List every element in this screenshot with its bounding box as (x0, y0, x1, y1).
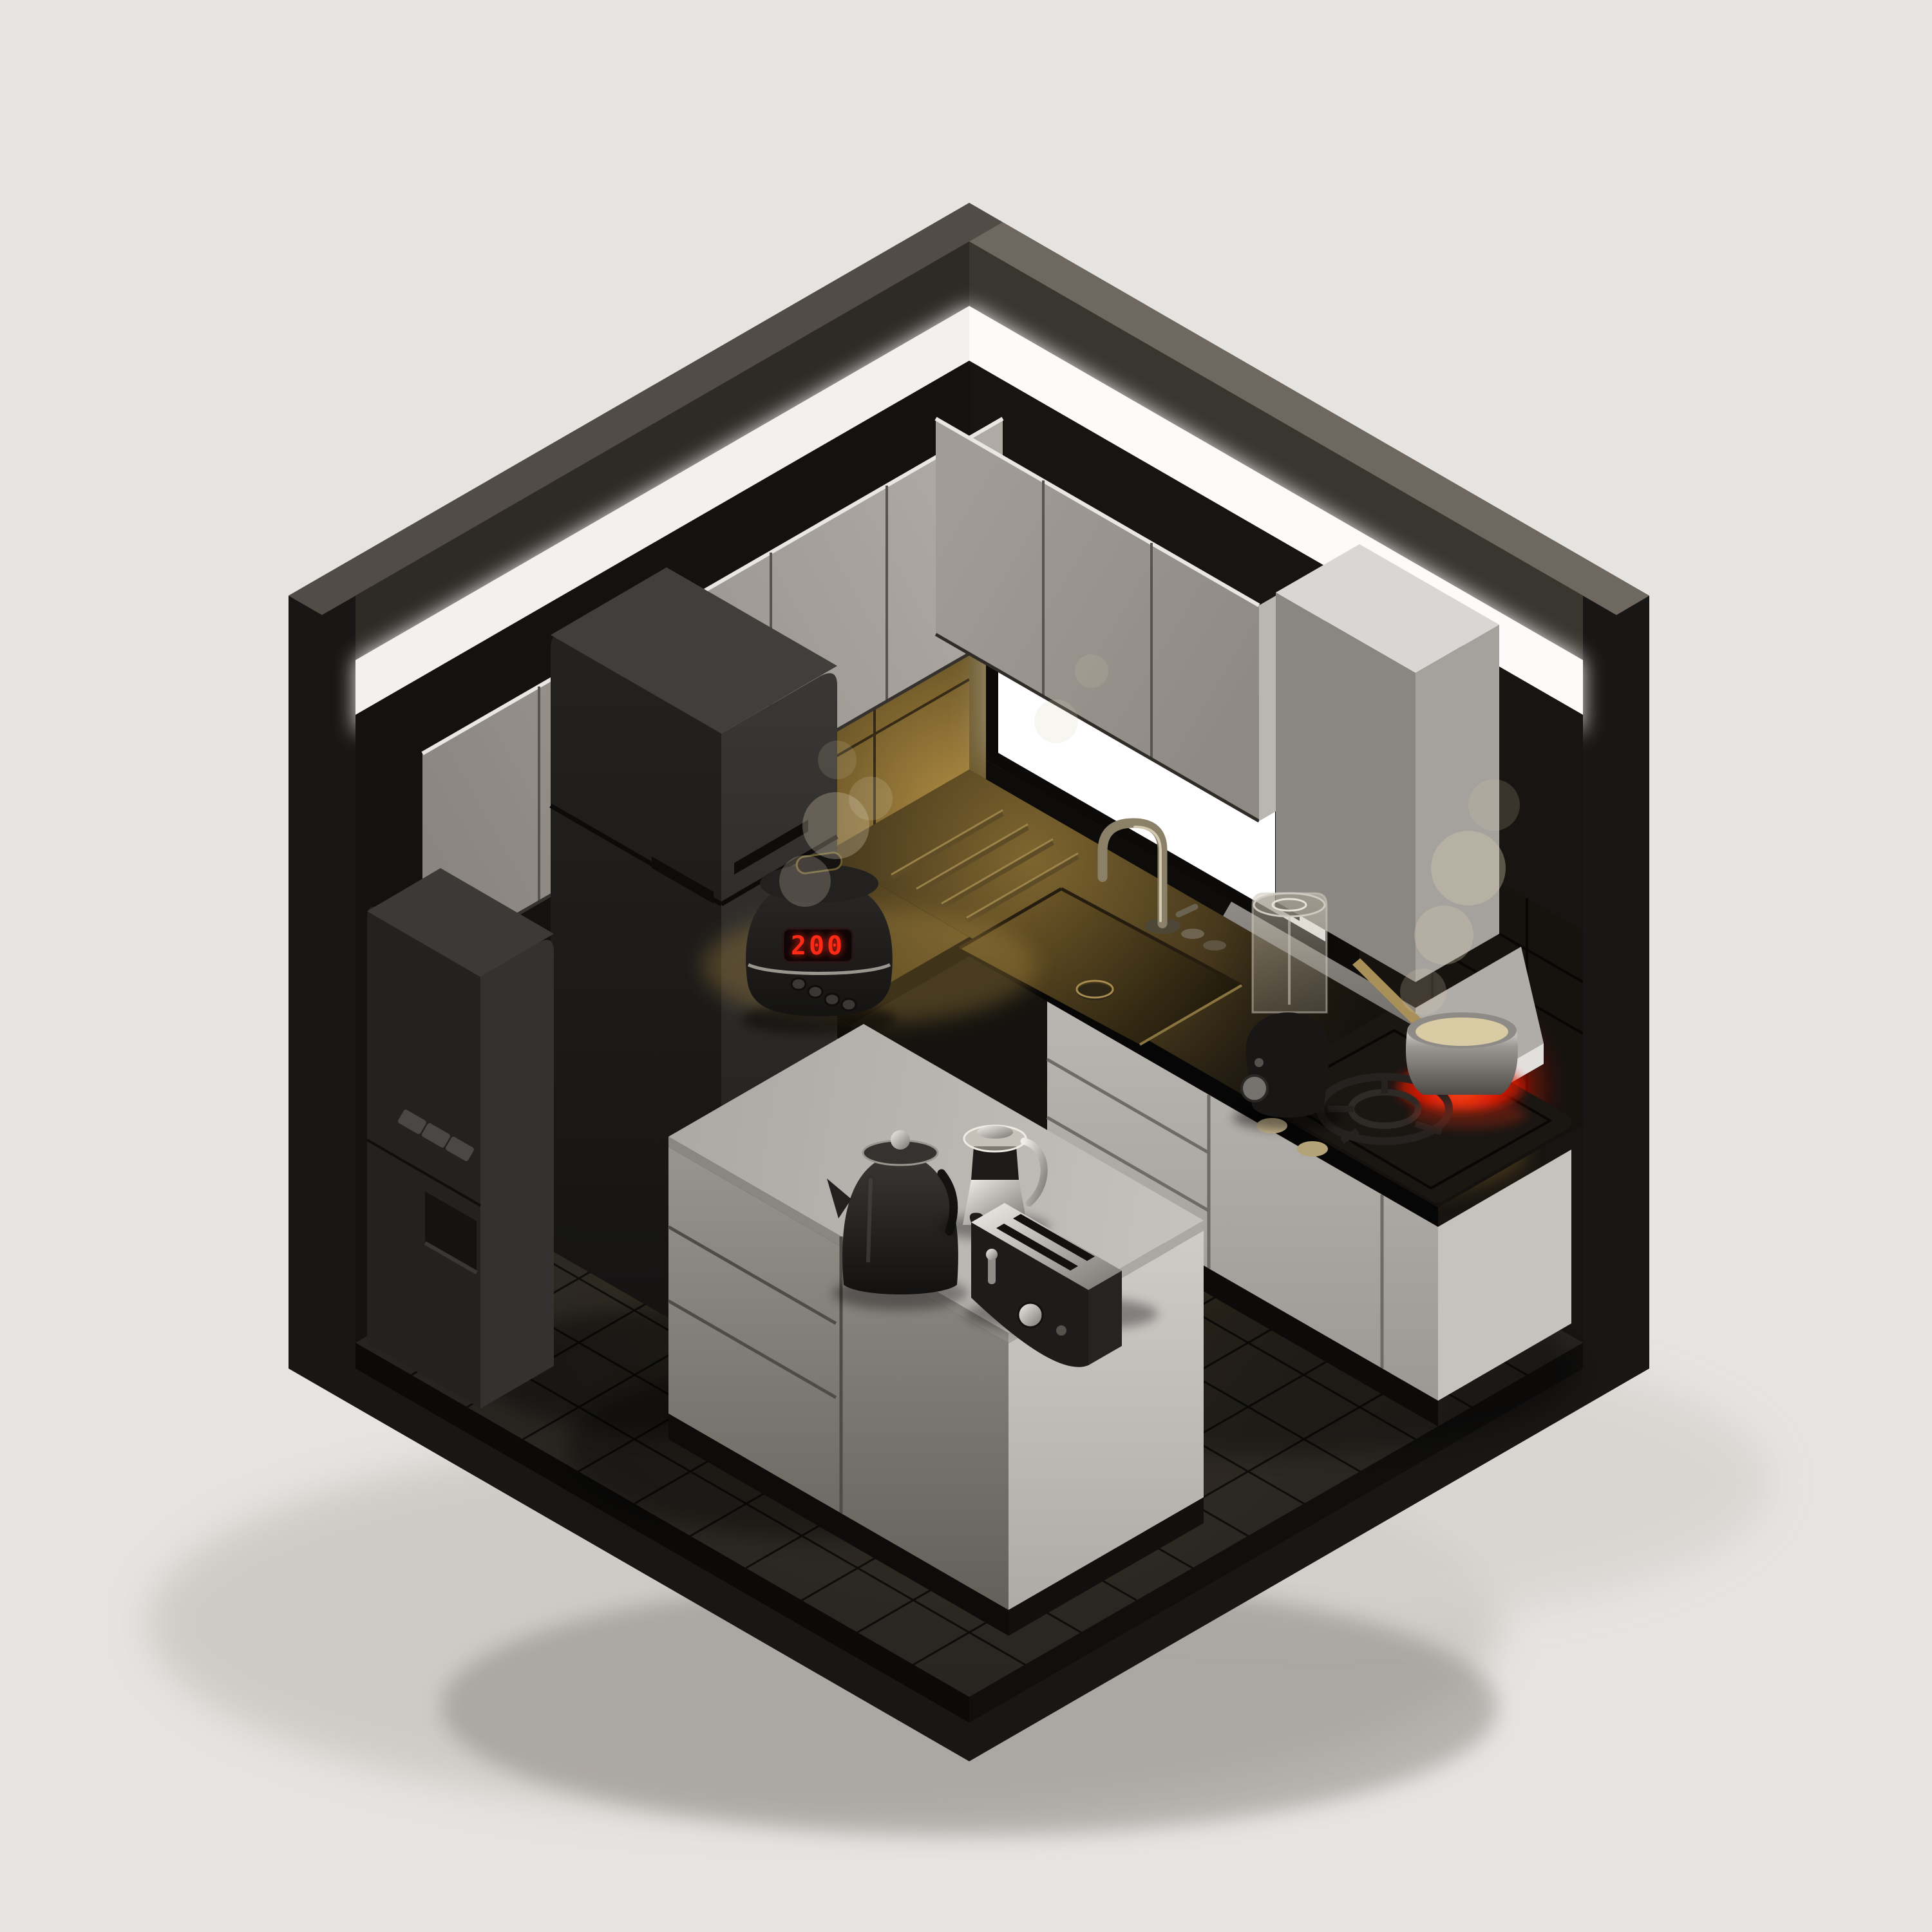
counter-puck-2 (1203, 940, 1226, 951)
rice-cooker-display-value: 200 (791, 931, 845, 961)
counter-puck-1 (1181, 929, 1204, 939)
burner-counter-glow (1410, 1100, 1526, 1128)
kettle-highlight (868, 1179, 871, 1262)
isometric-kitchen-scene: 200 200 (0, 0, 1932, 1932)
coffee-pot-lid-ring (977, 1126, 1013, 1139)
water-dispenser (367, 868, 554, 1408)
cooktop-knob-2 (1297, 1141, 1328, 1157)
saucepan-contents (1416, 1018, 1508, 1046)
kitchen-diorama-render: 200 200 (0, 0, 1932, 1932)
toaster-lever (986, 1249, 998, 1260)
blender-button (1255, 1058, 1264, 1067)
toaster-knob (1018, 1303, 1043, 1327)
dispenser-right-face (480, 940, 554, 1408)
toaster-button (1056, 1325, 1066, 1336)
blender-lid (1254, 893, 1325, 916)
kettle-knob (891, 1130, 910, 1150)
blender-knob (1242, 1075, 1267, 1101)
